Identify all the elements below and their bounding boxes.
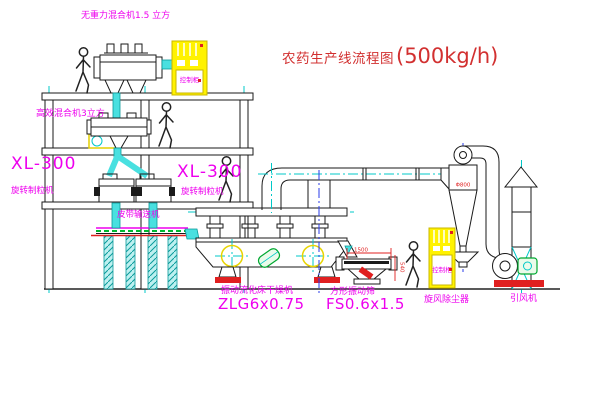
cabinet1-label: 控制柜: [180, 75, 200, 84]
screen-height-dim: 540: [399, 262, 405, 273]
label-granulator-left-name: 旋转制粒机: [11, 187, 54, 196]
vibrating-screen: [336, 257, 397, 284]
fluid-bed-dryer: [188, 208, 357, 283]
control-cabinet-2: 控制柜: [429, 228, 455, 288]
rotary-granulators: [94, 174, 175, 202]
diagram-title: 农药生产线流程图(500kg/h): [282, 44, 498, 68]
label-granulator-right-name: 旋转制粒机: [181, 188, 224, 197]
exhaust-duct: [258, 163, 452, 296]
induced-draft-fan: [493, 254, 545, 288]
worker-figure: [76, 48, 90, 93]
worker-figure: [159, 103, 173, 148]
title-text: 农药生产线流程图: [282, 51, 394, 67]
label-gravity-mixer: 无重力混合机1.5 立方: [81, 12, 170, 21]
label-dryer-model: ZLG6x0.75: [218, 297, 305, 313]
worker-figure: [406, 242, 420, 287]
label-high-eff-mixer: 高效混合机3立方: [36, 110, 105, 119]
label-cyclone: 旋风除尘器: [424, 296, 469, 305]
label-granulator-right-model: XL-300: [177, 164, 242, 182]
flow-diagram-page: 控制柜: [0, 0, 600, 403]
screen-length-dim: 1500: [354, 248, 368, 254]
label-granulator-left-model: XL-300: [11, 156, 76, 174]
label-belt-conveyor: 皮带输送机: [117, 211, 160, 220]
control-cabinet-1: 控制柜: [172, 41, 207, 95]
title-capacity: (500kg/h): [396, 44, 498, 68]
label-screen-model: FS0.6x1.5: [326, 297, 405, 313]
label-induced-draft-fan: 引风机: [510, 295, 537, 304]
cyclone-dimension: Φ800: [456, 183, 471, 189]
